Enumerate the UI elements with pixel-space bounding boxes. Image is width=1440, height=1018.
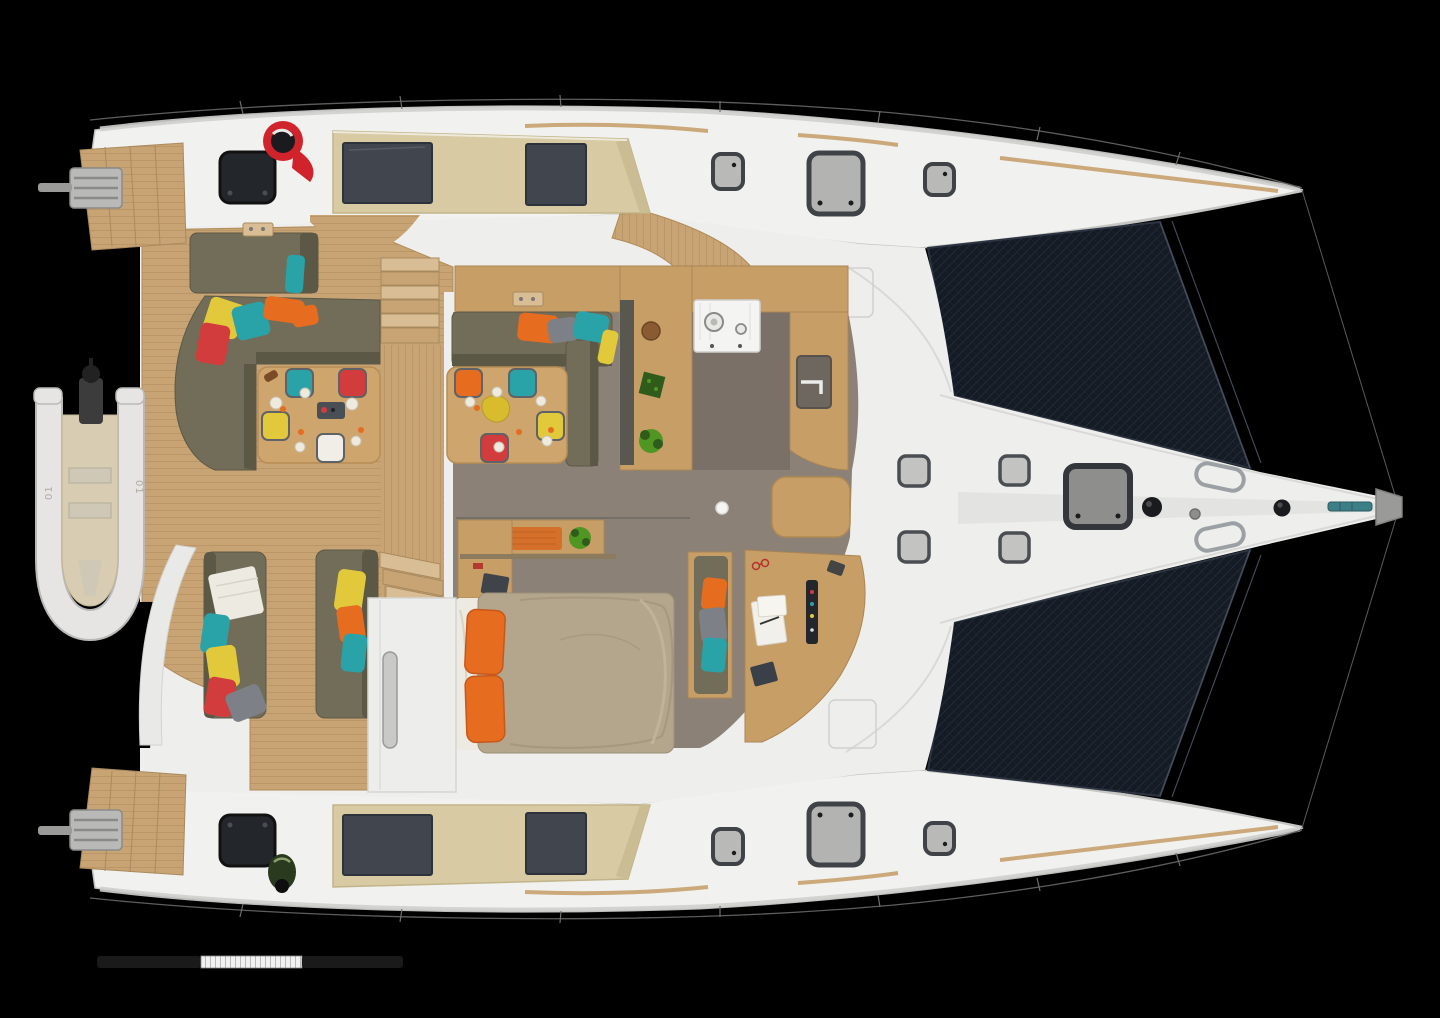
stool-teal (509, 369, 536, 397)
stool-orange (455, 369, 482, 397)
roof-window (526, 813, 586, 874)
roof-window (526, 144, 586, 205)
helm-seat (772, 477, 850, 537)
door-handle (383, 652, 397, 748)
deck-plan-render: 01 01 (0, 0, 1440, 1018)
dinghy: 01 01 (34, 358, 144, 640)
roof-window (343, 815, 432, 875)
cockpit-hatch-port (220, 815, 275, 866)
speaker-box (513, 292, 543, 306)
cockpit-dining-table (258, 367, 380, 463)
speaker-box (243, 223, 273, 236)
stool-yellow (537, 412, 564, 440)
aft-bench (190, 223, 318, 294)
cabin-bench (688, 552, 732, 698)
dinghy-marking-starboard: 01 (133, 480, 144, 495)
stove (694, 300, 760, 352)
pillow-orange (464, 609, 505, 675)
scale-bar (97, 956, 403, 968)
pillow-teal (340, 633, 368, 673)
starboard-coachroof (333, 131, 650, 213)
dinghy-marking-port: 01 (44, 485, 55, 500)
pillow-teal (285, 254, 306, 293)
ceiling-light (716, 502, 728, 514)
pillow-orange (465, 675, 505, 742)
master-bed (456, 593, 674, 753)
stool-yellow (262, 412, 289, 440)
stairs-upper (381, 258, 439, 343)
cockpit-hatch-starboard (220, 152, 275, 203)
pillow-orange (700, 577, 727, 611)
roof-window (343, 143, 432, 203)
aft-cabin-door (368, 598, 456, 792)
pillow-gray (698, 607, 727, 644)
daybed-outboard (199, 552, 268, 724)
saloon-dining-table (447, 367, 567, 463)
bowl (642, 322, 660, 340)
pillow-teal (701, 637, 728, 673)
scale-bar-light-segment (201, 956, 302, 968)
stool-white (317, 434, 344, 462)
instrument-panel (806, 580, 818, 644)
stool-red (339, 369, 366, 397)
port-coachroof (333, 805, 650, 887)
catamaran-deck-plan: 01 01 (0, 0, 1440, 1018)
